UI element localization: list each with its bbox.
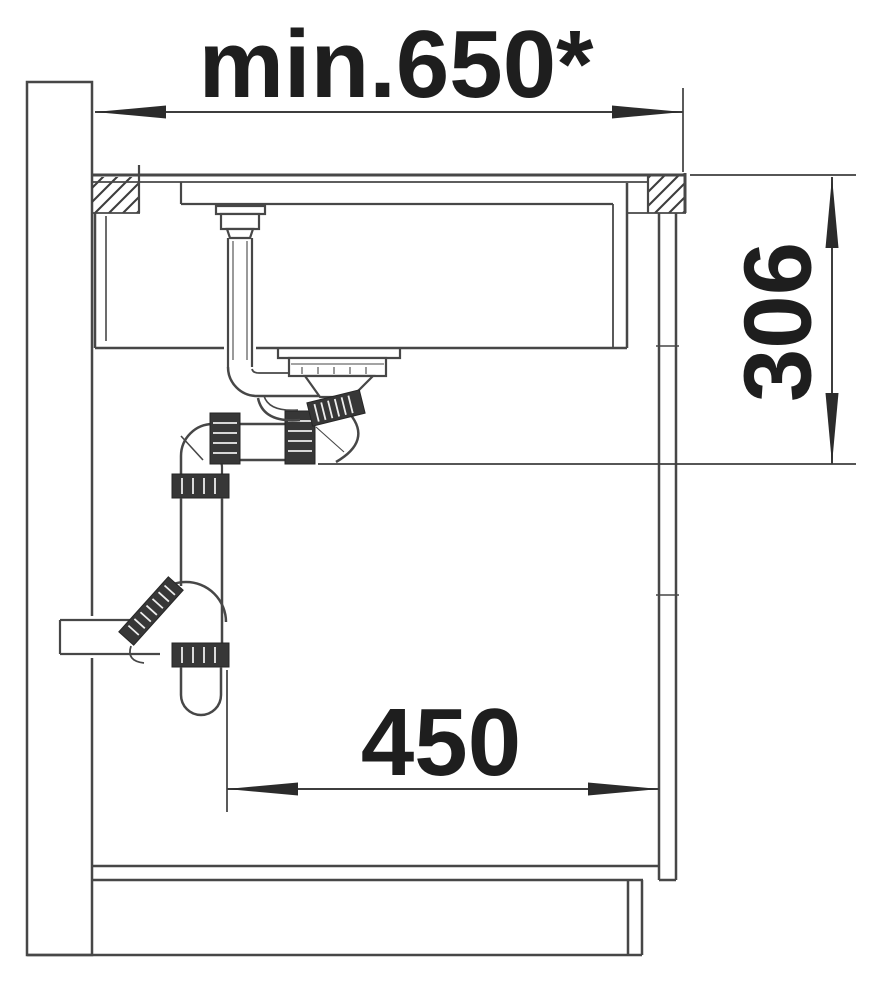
arrowhead-right xyxy=(588,783,659,796)
dimension-label-top: min.650* xyxy=(199,11,595,118)
dimension-label-right: 306 xyxy=(725,242,832,402)
arrowhead-down xyxy=(826,393,839,464)
arrowhead-up xyxy=(826,177,839,248)
installation-diagram: min.650* 306 450 xyxy=(0,0,886,990)
sink-bowl-profile xyxy=(95,182,627,348)
dimension-label-bottom: 450 xyxy=(361,689,521,796)
arrowhead-left xyxy=(227,783,298,796)
sink-installation-diagram-page: min.650* 306 450 xyxy=(0,0,886,990)
cabinet-outline xyxy=(27,213,679,955)
arrowhead-left xyxy=(95,106,166,119)
wall-section xyxy=(27,82,92,955)
dimension-right-depth: 306 xyxy=(318,175,856,464)
waste-downpipe xyxy=(56,474,229,715)
dimension-top-width: min.650* xyxy=(95,11,683,172)
dimension-bottom-offset: 450 xyxy=(227,670,659,812)
arrowhead-right xyxy=(612,106,683,119)
